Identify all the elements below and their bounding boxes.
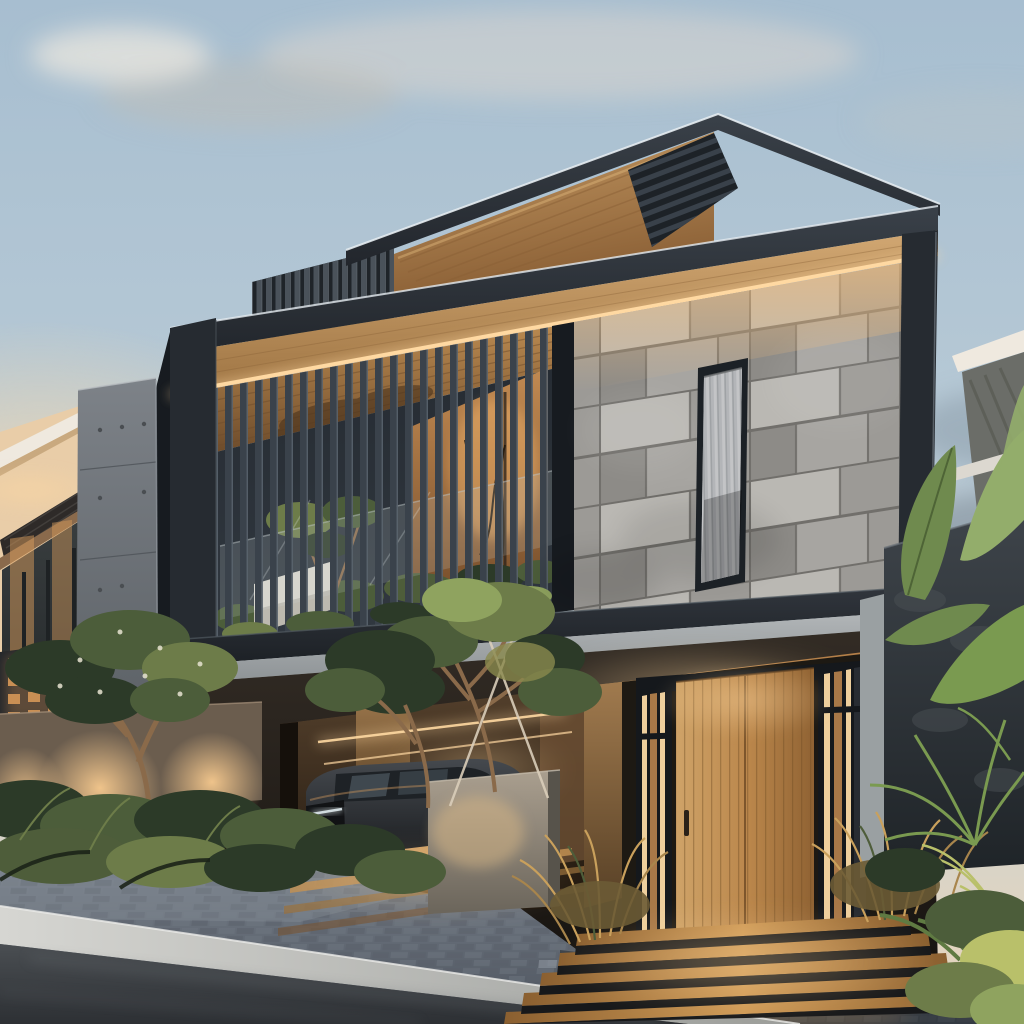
house-exterior-photo [0,0,1024,1024]
stone-window [695,358,748,592]
frame-left-member [170,318,216,664]
windshield-reflection [348,773,390,799]
entry-side-wall [584,682,622,908]
scene-canvas [0,0,1024,1024]
door-handle [684,810,689,836]
